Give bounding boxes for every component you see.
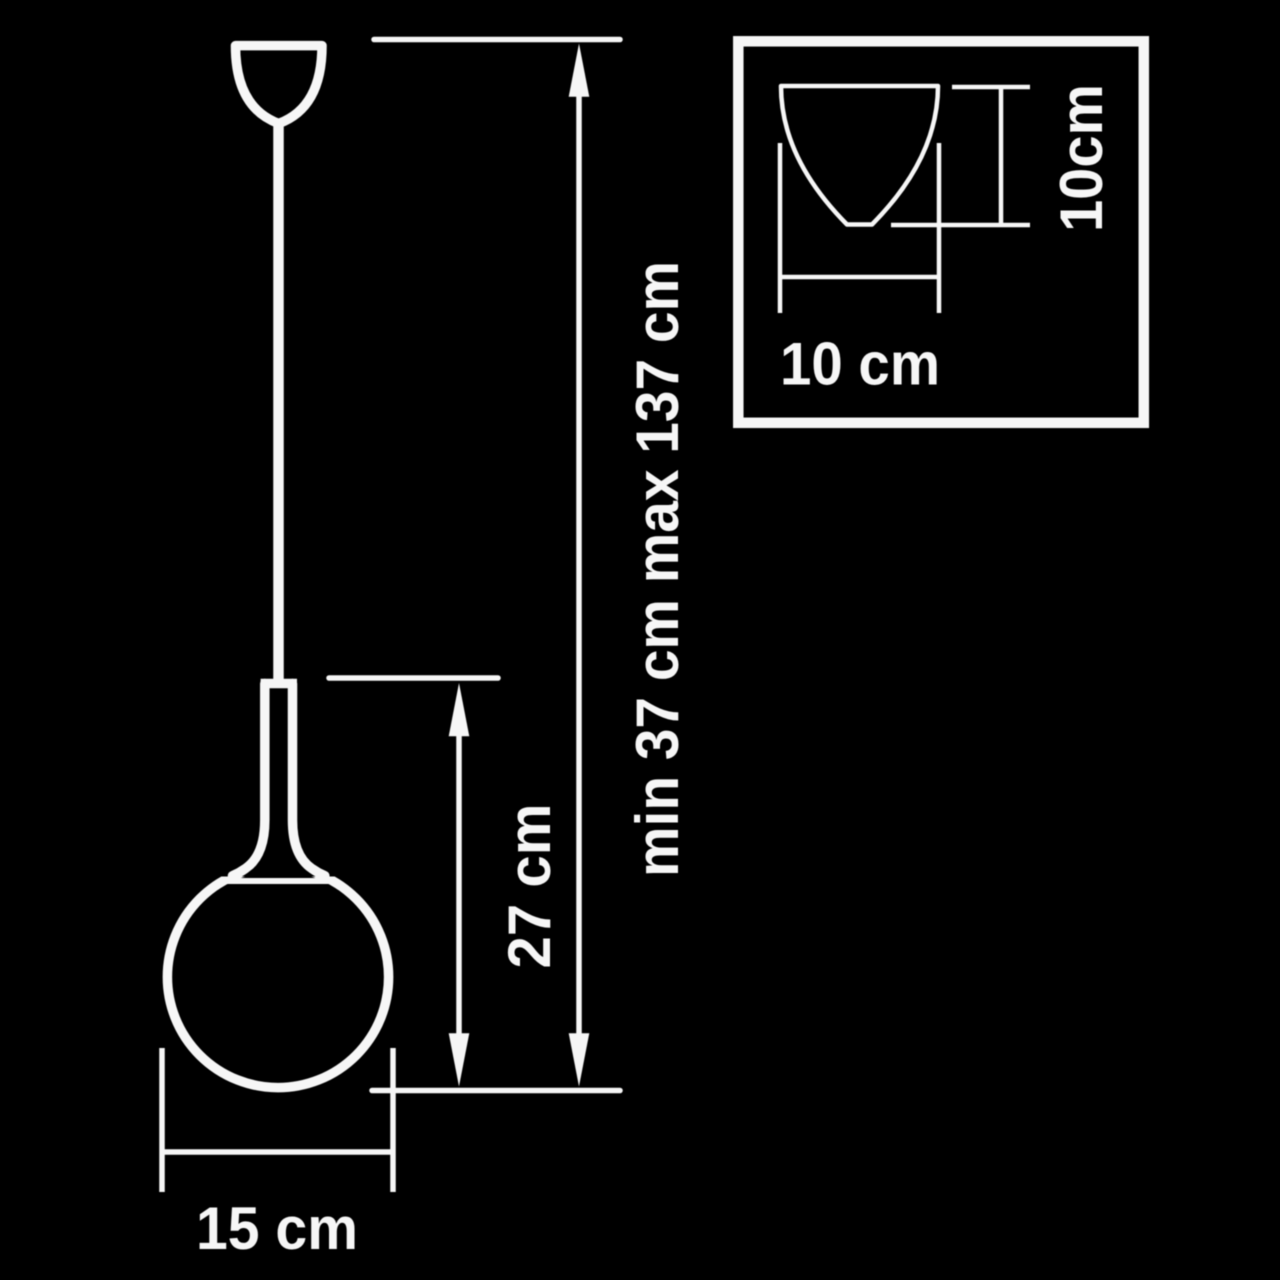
svg-text:15 cm: 15 cm: [196, 1195, 358, 1262]
svg-text:10 cm: 10 cm: [780, 331, 940, 398]
svg-text:10cm: 10cm: [1048, 84, 1115, 232]
svg-text:27 cm: 27 cm: [496, 804, 563, 969]
svg-text:min 37 cm max 137 cm: min 37 cm max 137 cm: [624, 261, 691, 877]
